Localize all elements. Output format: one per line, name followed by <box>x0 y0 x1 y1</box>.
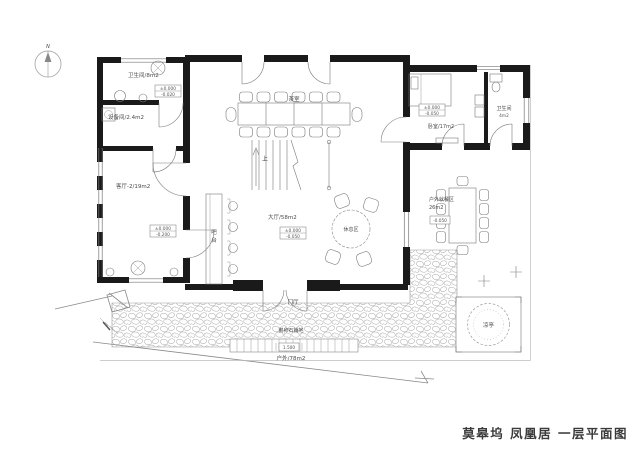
bar-label-char2: 台 <box>211 236 217 244</box>
tea-room-label: 茶室 <box>288 95 300 103</box>
north-label: N <box>46 44 50 50</box>
bar-label-char1: 吧 <box>211 229 217 236</box>
outdoor-dining-label: 户外就餐区 <box>429 196 454 203</box>
pavilion: 凉亭 <box>456 297 521 352</box>
outdoor-label: 户外/78m2 <box>277 354 306 362</box>
elevation-value: ±0.000 <box>285 228 301 234</box>
stairs-up-label: 上 <box>262 155 268 163</box>
elevation-value: ±0.000 <box>160 86 176 92</box>
north-arrow-icon: N <box>35 44 61 77</box>
stone-paving-label: 鹅卵石铺地 <box>278 327 303 334</box>
elevation-value: -0.020 <box>161 92 175 98</box>
equipment-room-label: 设备间/2.4m2 <box>108 113 144 121</box>
entry-label: 门厅 <box>287 298 299 306</box>
elevation-value: ±0.000 <box>424 105 440 111</box>
pavilion-label: 凉亭 <box>483 321 495 329</box>
survey-cross-icon <box>478 266 522 287</box>
lounge-label: 休息区 <box>343 226 358 233</box>
staircase <box>252 140 331 190</box>
outdoor-dining-table <box>437 177 489 255</box>
outdoor-dining-area: 26m2 <box>429 205 443 211</box>
bedroom-label: 卧室/17m2 <box>428 123 454 130</box>
living2-label: 客厅-2/19m2 <box>116 182 150 190</box>
elevation-value: -0.050 <box>433 218 447 224</box>
plant-icon <box>106 261 178 276</box>
drawing-title: 莫皋坞 凤凰居 一层平面图 <box>462 426 628 441</box>
bathroom-right-label: 卫生间 <box>496 105 511 112</box>
bathroom-right-area: 4m2 <box>499 113 509 119</box>
elevation-value: -0.050 <box>286 234 300 240</box>
door-swings <box>153 62 512 311</box>
bathroom-left-label: 卫生间/8m2 <box>128 71 159 79</box>
floor-plan-canvas: 凉亭 <box>0 0 640 465</box>
hall-label: 大厅/58m2 <box>268 213 297 221</box>
elevation-value: -0.050 <box>425 111 439 117</box>
dimension-value: 1.500 <box>283 345 296 351</box>
floor-plan-page: 凉亭 <box>0 0 640 465</box>
elevation-value: ±0.000 <box>155 226 171 232</box>
elevation-value: -0.200 <box>156 232 170 238</box>
